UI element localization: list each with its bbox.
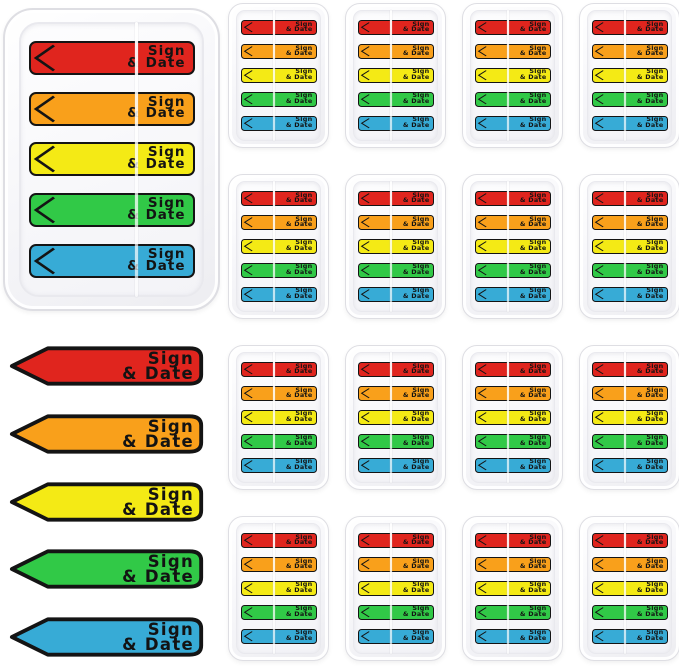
dispenser-flag-blue: Sign & Date [241,287,317,302]
dispenser-tray: Sign & Date Sign & Date Sign & Date Sign… [470,352,555,483]
flag-label: Sign & Date [637,241,664,253]
flag-label-line2: & Date [520,270,547,276]
flag-label: Sign & Date [286,265,313,277]
flag-label: Sign & Date [403,117,430,129]
dispenser-tray: Sign & Date Sign & Date Sign & Date Sign… [587,523,672,654]
flag-dispenser-small: Sign & Date Sign & Date Sign & Date Sign… [462,345,563,490]
flag-label: Sign & Date [286,535,313,547]
loose-arrow-flag-orange: Sign & Date [9,413,207,455]
arrow-chevron-icon [243,535,253,546]
flag-dispenser-small: Sign & Date Sign & Date Sign & Date Sign… [579,174,679,319]
flag-label: Sign & Date [637,436,664,448]
arrow-chevron-icon [477,265,487,276]
dispenser-flag-green: Sign & Date [475,92,551,107]
dispenser-tray: Sign & Date Sign & Date Sign & Date Sign… [470,523,555,654]
flag-label-line2: & Date [637,612,664,618]
flag-label-line2: & Date [520,246,547,252]
flag-dispenser-small: Sign & Date Sign & Date Sign & Date Sign… [579,345,679,490]
dispenser-flag-orange: Sign & Date [592,557,668,572]
dispenser-tray: Sign & Date Sign & Date Sign & Date Sign… [587,10,672,141]
flag-dispenser-small: Sign & Date Sign & Date Sign & Date Sign… [462,174,563,319]
flag-label: Sign & Date [403,241,430,253]
arrow-chevron-icon [243,412,253,423]
flag-label-line2: & Date [403,75,430,81]
arrow-chevron-icon [477,94,487,105]
flag-label: Sign & Date [520,364,547,376]
flag-label-line2: & Date [403,246,430,252]
dispenser-flag-blue: Sign & Date [475,458,551,473]
dispenser-flag-green: Sign & Date [475,605,551,620]
flag-label-line2: & Date [286,394,313,400]
flag-label-line2: & Date [637,270,664,276]
dispenser-flag-red: Sign & Date [475,533,551,548]
arrow-chevron-icon [243,265,253,276]
dispenser-flag-yellow: Sign & Date [358,239,434,254]
flag-label: Sign & Date [286,436,313,448]
flag-label: Sign & Date [286,412,313,424]
flag-label: Sign & Date [403,94,430,106]
arrow-chevron-icon [594,535,604,546]
dispenser-slit [135,22,138,297]
flag-label-line2: & Date [403,370,430,376]
arrow-chevron-icon [360,460,370,471]
flag-label-line2: & Date [637,465,664,471]
dispenser-flag-green: Sign & Date [592,263,668,278]
dispenser-flag-blue: Sign & Date [592,458,668,473]
dispenser-slit [273,181,275,313]
arrow-chevron-icon [360,241,370,252]
dispenser-flag-red: Sign & Date [241,191,317,206]
flag-label-line2: & Date [286,370,313,376]
dispenser-flag-red: Sign & Date [475,191,551,206]
flag-label: Sign & Date [286,583,313,595]
flag-label-line2: & Date [520,441,547,447]
flag-label: Sign & Date [286,559,313,571]
dispenser-flag-yellow: Sign & Date [29,142,195,176]
dispenser-slit [273,352,275,484]
dispenser-slit [624,352,626,484]
flag-label: Sign & Date [637,535,664,547]
arrow-chevron-icon [243,289,253,300]
flag-label: Sign & Date [122,487,194,517]
dispenser-flag-green: Sign & Date [241,263,317,278]
flag-label: Sign & Date [286,217,313,229]
flag-label: Sign & Date [286,46,313,58]
dispenser-flag-orange: Sign & Date [475,386,551,401]
dispenser-flag-blue: Sign & Date [358,116,434,131]
flag-label: Sign & Date [403,535,430,547]
arrow-chevron-icon [360,535,370,546]
dispenser-flag-blue: Sign & Date [592,116,668,131]
arrow-chevron-icon [360,559,370,570]
dispenser-flag-green: Sign & Date [241,434,317,449]
dispenser-flag-green: Sign & Date [358,434,434,449]
loose-flags-stack: Sign & Date Sign & Date Sign & Date Sign… [9,345,207,658]
flag-dispenser-small: Sign & Date Sign & Date Sign & Date Sign… [228,174,329,319]
flag-label-line2: & Date [286,294,313,300]
flag-label: Sign & Date [286,241,313,253]
dispenser-flag-blue: Sign & Date [358,629,434,644]
flag-label: Sign & Date [637,117,664,129]
flag-label-line2: & Date [637,99,664,105]
flag-label: Sign & Date [403,583,430,595]
dispenser-slit [507,181,509,313]
arrow-chevron-icon [477,559,487,570]
flag-label: Sign & Date [637,412,664,424]
dispenser-flag-orange: Sign & Date [358,44,434,59]
arrow-chevron-icon [477,289,487,300]
flag-label-line2: & Date [286,99,313,105]
dispenser-flag-red: Sign & Date [475,20,551,35]
arrow-chevron-icon [477,436,487,447]
dispenser-flag-red: Sign & Date [592,191,668,206]
arrow-chevron-icon [594,241,604,252]
dispenser-flag-orange: Sign & Date [29,92,195,126]
arrow-chevron-icon [32,196,56,224]
flag-label: Sign & Date [520,607,547,619]
flag-label: Sign & Date [520,265,547,277]
flag-label-line2: & Date [637,28,664,34]
dispenser-flag-blue: Sign & Date [475,287,551,302]
flag-label-line2: & Date [286,588,313,594]
arrow-chevron-icon [477,607,487,618]
flag-label-line2: & Date [403,612,430,618]
dispenser-tray: Sign & Date Sign & Date Sign & Date Sign… [587,181,672,312]
flag-label: Sign & Date [403,22,430,34]
dispenser-flag-green: Sign & Date [592,92,668,107]
dispenser-flag-blue: Sign & Date [475,116,551,131]
arrow-chevron-icon [477,535,487,546]
flag-label-line2: & Date [403,465,430,471]
flag-label: Sign & Date [122,351,194,381]
flag-label: Sign & Date [520,412,547,424]
arrow-chevron-icon [477,70,487,81]
flag-label: Sign & Date [122,554,194,584]
arrow-chevron-icon [477,460,487,471]
dispenser-flag-orange: Sign & Date [592,44,668,59]
arrow-chevron-icon [243,217,253,228]
dispenser-tray: Sign & Date Sign & Date Sign & Date Sign… [236,523,321,654]
dispenser-flag-blue: Sign & Date [592,287,668,302]
flag-label-line2: & Date [122,366,194,381]
flag-label-line2: & Date [637,636,664,642]
flag-label-line2: & Date [403,270,430,276]
arrow-chevron-icon [360,412,370,423]
flag-label-line2: & Date [286,270,313,276]
flag-dispenser-small: Sign & Date Sign & Date Sign & Date Sign… [345,3,446,148]
dispenser-flag-blue: Sign & Date [241,458,317,473]
flag-label: Sign & Date [520,241,547,253]
arrow-chevron-icon [477,412,487,423]
arrow-chevron-icon [477,217,487,228]
flag-label: Sign & Date [520,559,547,571]
dispenser-flag-green: Sign & Date [592,605,668,620]
flag-label-line2: & Date [637,123,664,129]
dispenser-flag-orange: Sign & Date [241,215,317,230]
arrow-chevron-icon [243,436,253,447]
flag-label-line2: & Date [403,294,430,300]
flag-label-line2: & Date [122,434,194,449]
arrow-chevron-icon [243,460,253,471]
arrow-chevron-icon [243,241,253,252]
flag-label-line2: & Date [286,223,313,229]
flag-label-line2: & Date [403,417,430,423]
flag-label-line2: & Date [122,569,194,584]
dispenser-tray: Sign & Date Sign & Date Sign & Date Sign… [353,10,438,141]
flag-label-line2: & Date [637,370,664,376]
flag-label-line2: & Date [403,565,430,571]
flag-label-line2: & Date [637,199,664,205]
dispenser-slit [390,352,392,484]
flag-label: Sign & Date [403,388,430,400]
flag-label: Sign & Date [520,630,547,642]
dispenser-flag-yellow: Sign & Date [241,581,317,596]
arrow-chevron-icon [594,94,604,105]
arrow-chevron-icon [243,388,253,399]
arrow-chevron-icon [32,247,56,275]
flag-dispenser-large: Sign & Date Sign & Date Sign & Date Sign… [3,8,220,311]
dispenser-flag-orange: Sign & Date [241,386,317,401]
flag-label: Sign & Date [637,630,664,642]
arrow-chevron-icon [594,631,604,642]
dispenser-tray: Sign & Date Sign & Date Sign & Date Sign… [470,181,555,312]
arrow-chevron-icon [360,217,370,228]
arrow-chevron-icon [477,388,487,399]
flag-label: Sign & Date [520,22,547,34]
dispenser-flag-yellow: Sign & Date [475,410,551,425]
flag-label: Sign & Date [286,94,313,106]
arrow-chevron-icon [594,460,604,471]
flag-label: Sign & Date [637,46,664,58]
dispenser-slit [624,10,626,142]
flag-label: Sign & Date [403,607,430,619]
dispenser-flag-blue: Sign & Date [358,458,434,473]
arrow-chevron-icon [243,94,253,105]
arrow-chevron-icon [594,412,604,423]
arrow-chevron-icon [477,118,487,129]
dispenser-flag-blue: Sign & Date [241,629,317,644]
dispenser-flag-red: Sign & Date [475,362,551,377]
flag-label-line2: & Date [286,246,313,252]
arrow-chevron-icon [360,583,370,594]
dispenser-flag-red: Sign & Date [592,533,668,548]
dispenser-tray: Sign & Date Sign & Date Sign & Date Sign… [353,181,438,312]
arrow-chevron-icon [594,364,604,375]
dispenser-slit [273,10,275,142]
flag-dispenser-small: Sign & Date Sign & Date Sign & Date Sign… [462,3,563,148]
dispenser-flag-green: Sign & Date [592,434,668,449]
arrow-chevron-icon [360,289,370,300]
arrow-chevron-icon [594,70,604,81]
dispenser-slit [624,181,626,313]
dispenser-slit [390,10,392,142]
arrow-chevron-icon [594,388,604,399]
flag-label: Sign & Date [122,419,194,449]
flag-label: Sign & Date [403,559,430,571]
flag-label: Sign & Date [403,412,430,424]
flag-label: Sign & Date [520,459,547,471]
dispenser-flag-orange: Sign & Date [358,215,434,230]
flag-label-line2: & Date [637,441,664,447]
flag-label-line2: & Date [520,370,547,376]
dispenser-flag-green: Sign & Date [29,193,195,227]
arrow-chevron-icon [243,46,253,57]
arrow-chevron-icon [243,70,253,81]
loose-arrow-flag-yellow: Sign & Date [9,481,207,523]
flag-label-line2: & Date [286,199,313,205]
flag-label-line2: & Date [403,394,430,400]
flag-label: Sign & Date [403,217,430,229]
flag-label-line2: & Date [520,75,547,81]
arrow-chevron-icon [360,631,370,642]
dispenser-flag-green: Sign & Date [358,92,434,107]
dispenser-flag-red: Sign & Date [358,191,434,206]
dispenser-flag-green: Sign & Date [475,434,551,449]
dispenser-flag-blue: Sign & Date [358,287,434,302]
flag-label: Sign & Date [286,193,313,205]
dispenser-flag-yellow: Sign & Date [241,410,317,425]
flag-label: Sign & Date [403,364,430,376]
flag-label: Sign & Date [520,388,547,400]
dispenser-slit [507,352,509,484]
flag-label: Sign & Date [286,288,313,300]
dispenser-flag-red: Sign & Date [592,20,668,35]
flag-label: Sign & Date [403,288,430,300]
dispenser-flag-orange: Sign & Date [241,557,317,572]
dispenser-flag-yellow: Sign & Date [241,239,317,254]
flag-label: Sign & Date [520,193,547,205]
dispenser-tray: Sign & Date Sign & Date Sign & Date Sign… [353,352,438,483]
flag-label: Sign & Date [403,630,430,642]
flag-label: Sign & Date [286,388,313,400]
flag-label-line2: & Date [520,588,547,594]
arrow-chevron-icon [594,22,604,33]
flag-label: Sign & Date [403,459,430,471]
dispenser-flag-red: Sign & Date [241,20,317,35]
flag-label-line2: & Date [403,52,430,58]
flag-label-line2: & Date [403,541,430,547]
flag-label-line2: & Date [286,123,313,129]
flag-label: Sign & Date [403,436,430,448]
dispenser-flag-blue: Sign & Date [241,116,317,131]
arrow-chevron-icon [360,193,370,204]
dispenser-flag-blue: Sign & Date [475,629,551,644]
flag-label: Sign & Date [637,288,664,300]
dispenser-slit [390,181,392,313]
arrow-chevron-icon [243,193,253,204]
arrow-chevron-icon [594,118,604,129]
arrow-chevron-icon [594,46,604,57]
flag-label-line2: & Date [286,28,313,34]
flag-dispenser-small: Sign & Date Sign & Date Sign & Date Sign… [228,3,329,148]
dispenser-flag-green: Sign & Date [475,263,551,278]
arrow-chevron-icon [360,607,370,618]
flag-label-line2: & Date [403,28,430,34]
flag-label: Sign & Date [286,364,313,376]
flag-label: Sign & Date [637,94,664,106]
arrow-chevron-icon [32,145,56,173]
dispenser-flag-yellow: Sign & Date [358,68,434,83]
dispenser-slit [390,523,392,655]
flag-dispenser-small: Sign & Date Sign & Date Sign & Date Sign… [228,345,329,490]
dispenser-flag-orange: Sign & Date [475,215,551,230]
flag-label-line2: & Date [403,123,430,129]
flag-label-line2: & Date [286,465,313,471]
dispenser-flag-yellow: Sign & Date [241,68,317,83]
flag-label-line2: & Date [403,223,430,229]
dispenser-flag-green: Sign & Date [358,263,434,278]
dispenser-tray: Sign & Date Sign & Date Sign & Date Sign… [587,352,672,483]
dispenser-flag-orange: Sign & Date [358,386,434,401]
flag-label-line2: & Date [286,636,313,642]
flag-label-line2: & Date [286,441,313,447]
flag-label-line2: & Date [637,588,664,594]
flag-label: Sign & Date [286,117,313,129]
arrow-chevron-icon [243,607,253,618]
arrow-chevron-icon [594,289,604,300]
flag-label: Sign & Date [637,193,664,205]
flag-label-line2: & Date [286,417,313,423]
flag-label-line2: & Date [637,223,664,229]
dispenser-flag-red: Sign & Date [29,41,195,75]
arrow-chevron-icon [243,22,253,33]
flag-label: Sign & Date [637,364,664,376]
dispenser-flag-orange: Sign & Date [241,44,317,59]
loose-arrow-flag-blue: Sign & Date [9,616,207,658]
dispenser-flag-yellow: Sign & Date [475,239,551,254]
flag-label: Sign & Date [637,22,664,34]
dispenser-flag-yellow: Sign & Date [592,410,668,425]
flag-label-line2: & Date [637,565,664,571]
loose-arrow-flag-green: Sign & Date [9,548,207,590]
flag-label: Sign & Date [637,459,664,471]
dispenser-flag-orange: Sign & Date [358,557,434,572]
dispenser-flag-orange: Sign & Date [592,386,668,401]
flag-label-line2: & Date [637,394,664,400]
flag-label-line2: & Date [637,294,664,300]
flag-dispenser-small: Sign & Date Sign & Date Sign & Date Sign… [345,174,446,319]
dispenser-flag-red: Sign & Date [358,362,434,377]
flag-label-line2: & Date [520,52,547,58]
flag-label: Sign & Date [520,70,547,82]
dispenser-flag-yellow: Sign & Date [475,68,551,83]
flag-label: Sign & Date [286,630,313,642]
flag-label-line2: & Date [403,636,430,642]
dispenser-tray: Sign & Date Sign & Date Sign & Date Sign… [19,22,204,297]
flag-label-line2: & Date [286,541,313,547]
dispenser-tray: Sign & Date Sign & Date Sign & Date Sign… [353,523,438,654]
dispenser-tray: Sign & Date Sign & Date Sign & Date Sign… [236,10,321,141]
dispenser-flag-orange: Sign & Date [475,557,551,572]
flag-label-line2: & Date [286,565,313,571]
arrow-chevron-icon [360,364,370,375]
flag-label-line2: & Date [520,99,547,105]
dispenser-flag-red: Sign & Date [358,20,434,35]
flag-label-line2: & Date [403,99,430,105]
arrow-chevron-icon [594,217,604,228]
flag-label-line2: & Date [520,199,547,205]
flag-label-line2: & Date [520,465,547,471]
arrow-chevron-icon [477,193,487,204]
dispenser-tray: Sign & Date Sign & Date Sign & Date Sign… [236,181,321,312]
flag-label-line2: & Date [403,199,430,205]
flag-label: Sign & Date [637,583,664,595]
flag-label: Sign & Date [520,217,547,229]
flag-label: Sign & Date [286,607,313,619]
arrow-chevron-icon [477,364,487,375]
flag-dispenser-small: Sign & Date Sign & Date Sign & Date Sign… [462,516,563,661]
dispenser-flag-blue: Sign & Date [592,629,668,644]
